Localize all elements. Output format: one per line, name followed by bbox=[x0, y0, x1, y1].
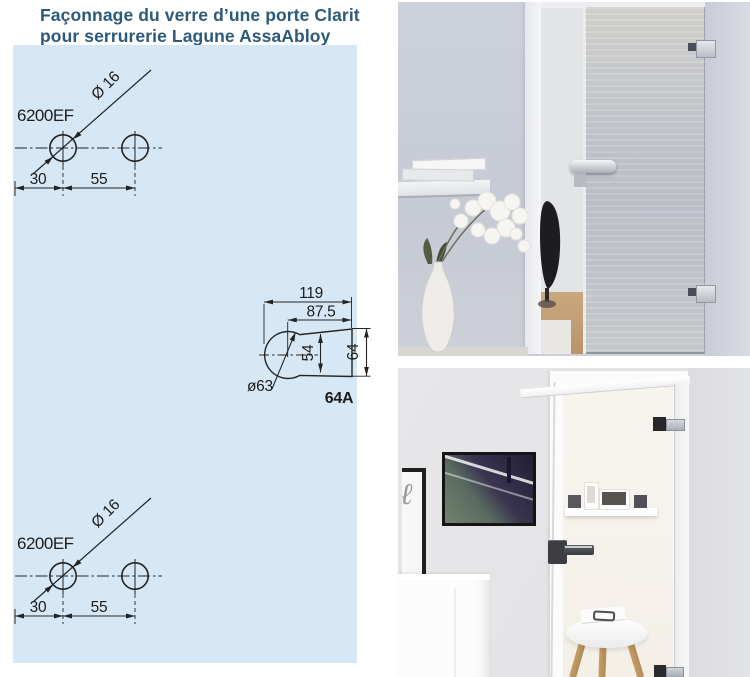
part-label: 6200EF bbox=[17, 106, 74, 125]
hinge-plate bbox=[696, 285, 716, 303]
dim-outer-height: 64 bbox=[345, 343, 362, 360]
dim-inner-height: 54 bbox=[300, 344, 317, 361]
hole-drawing-top: 6200EF Ø 16 30 55 bbox=[10, 65, 180, 205]
dim-total-width: 119 bbox=[299, 285, 323, 302]
photo-frosted-glass-door bbox=[398, 2, 750, 356]
door-hinge-top bbox=[653, 417, 666, 431]
hole-diameter-label: Ø 16 bbox=[88, 68, 123, 103]
door-lock-body bbox=[574, 174, 586, 187]
hole-drawing-bottom: 6200EF Ø 16 30 55 bbox=[10, 493, 180, 633]
catalog-page: Façonnage du verre d’une porte Clarit po… bbox=[0, 0, 750, 677]
picture-chimney bbox=[507, 457, 511, 483]
door-lever-handle bbox=[570, 160, 616, 173]
door-hinge-bottom bbox=[688, 285, 714, 305]
hinge-arm bbox=[666, 667, 684, 677]
hinge-arm bbox=[666, 419, 685, 431]
wall-art-partial: ℓ bbox=[402, 468, 426, 588]
dim-edge-to-hole: 30 bbox=[30, 171, 47, 188]
cutout-part-label: 64A bbox=[325, 390, 354, 407]
dim-hole-to-hole: 55 bbox=[91, 171, 108, 188]
page-title: Façonnage du verre d’une porte Clarit po… bbox=[40, 5, 360, 47]
lock-cutout-drawing: 119 87.5 54 64 ø63 64A bbox=[245, 273, 377, 413]
page-title-line2: pour serrurerie Lagune AssaAbloy bbox=[40, 26, 360, 47]
door-hinge-top bbox=[688, 40, 714, 60]
door-hinge-bottom bbox=[654, 665, 666, 677]
vase-leaf bbox=[423, 238, 432, 264]
wall-right bbox=[688, 368, 750, 677]
dim-hole-to-hole: 55 bbox=[91, 599, 108, 616]
dim-center-to-edge: 87.5 bbox=[307, 304, 336, 321]
black-chair bbox=[540, 201, 560, 289]
page-title-line1: Façonnage du verre d’une porte Clarit bbox=[40, 5, 360, 26]
orchid-flowers bbox=[450, 192, 530, 252]
console-edge-line bbox=[454, 588, 456, 677]
white-vase bbox=[422, 262, 455, 352]
door-lever-handle bbox=[564, 545, 594, 555]
lever-highlight bbox=[565, 546, 592, 548]
framed-picture bbox=[442, 452, 536, 526]
dim-edge-to-hole: 30 bbox=[30, 599, 47, 616]
white-console-table bbox=[398, 574, 490, 677]
hole-diameter-label: Ø 16 bbox=[88, 496, 123, 531]
cursive-letter: ℓ bbox=[402, 478, 413, 512]
part-label: 6200EF bbox=[17, 534, 74, 553]
dim-circle-diameter: ø63 bbox=[247, 378, 273, 395]
hinge-plate bbox=[696, 40, 716, 58]
picture-highlight bbox=[442, 469, 536, 509]
